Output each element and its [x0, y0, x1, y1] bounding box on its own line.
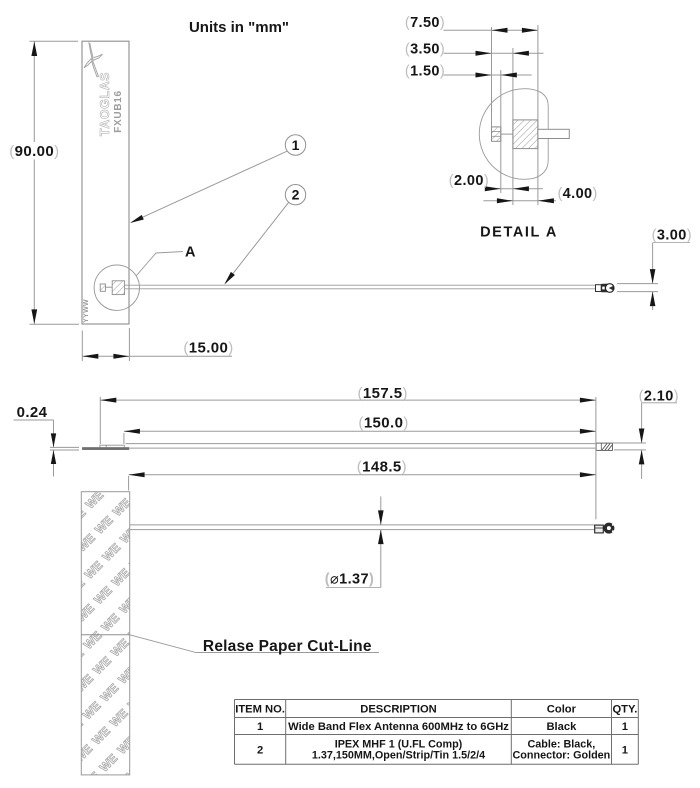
- svg-text:Connector: Golden: Connector: Golden: [513, 750, 611, 762]
- svg-text:(3.50): (3.50): [405, 42, 445, 58]
- svg-text:(7.50): (7.50): [405, 15, 445, 31]
- svg-text:1: 1: [622, 744, 628, 756]
- svg-text:(1.50): (1.50): [405, 63, 445, 79]
- svg-text:DESCRIPTION: DESCRIPTION: [360, 703, 436, 715]
- svg-text:2: 2: [257, 744, 263, 756]
- svg-text:Wide Band Flex Antenna 600MHz: Wide Band Flex Antenna 600MHz to 6GHz: [288, 721, 509, 733]
- svg-text:TAOGLAS: TAOGLAS: [98, 72, 112, 136]
- svg-text:DETAIL A: DETAIL A: [480, 225, 558, 241]
- svg-text:QTY.: QTY.: [612, 703, 637, 715]
- svg-text:(3.00): (3.00): [652, 228, 692, 244]
- svg-text:(15.00): (15.00): [183, 339, 233, 356]
- svg-text:Color: Color: [547, 703, 577, 715]
- svg-text:(2.00): (2.00): [449, 173, 489, 189]
- svg-text:(157.5): (157.5): [358, 385, 408, 402]
- svg-text:1: 1: [622, 721, 628, 733]
- svg-text:2: 2: [292, 187, 300, 203]
- svg-text:YYWW: YYWW: [83, 299, 90, 323]
- svg-text:(90.00): (90.00): [9, 143, 59, 160]
- svg-text:FXUB16: FXUB16: [113, 90, 124, 133]
- svg-text:Black: Black: [546, 721, 577, 733]
- svg-text:(4.00): (4.00): [557, 186, 597, 202]
- svg-text:0.24: 0.24: [17, 404, 48, 421]
- svg-text:Relase Paper Cut-Line: Relase Paper Cut-Line: [203, 638, 372, 655]
- svg-text:(150.0): (150.0): [358, 415, 408, 432]
- svg-text:1: 1: [292, 137, 300, 153]
- svg-text:1: 1: [257, 721, 263, 733]
- svg-text:ITEM NO.: ITEM NO.: [235, 703, 285, 715]
- svg-text:(2.10): (2.10): [639, 389, 679, 405]
- svg-text:1.37,150MM,Open/Strip/Tin 1.5/: 1.37,150MM,Open/Strip/Tin 1.5/2/4: [312, 750, 485, 762]
- svg-text:(⌀1.37): (⌀1.37): [325, 572, 374, 588]
- svg-text:Units in "mm": Units in "mm": [189, 19, 289, 36]
- svg-text:A: A: [185, 245, 196, 261]
- svg-text:(148.5): (148.5): [357, 459, 407, 476]
